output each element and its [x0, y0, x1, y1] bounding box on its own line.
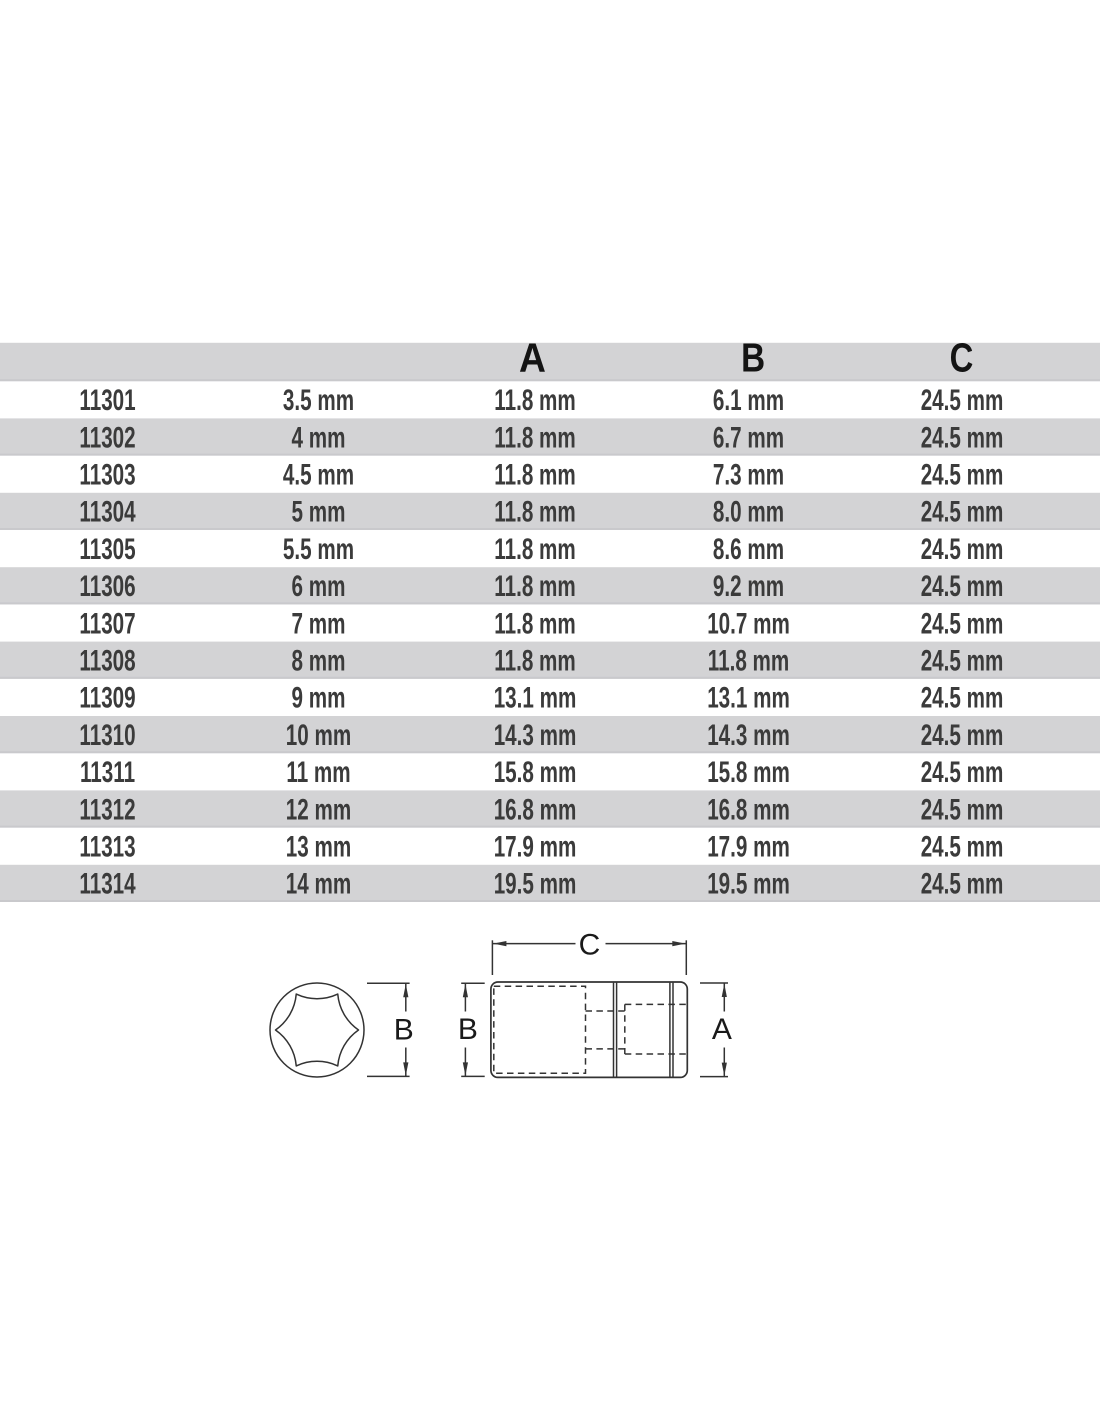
svg-text:11.8 mm: 11.8 mm [494, 422, 575, 454]
svg-text:11.8 mm: 11.8 mm [708, 645, 789, 677]
svg-text:5 mm: 5 mm [292, 496, 346, 528]
svg-text:13.1 mm: 13.1 mm [707, 682, 790, 714]
svg-text:11.8 mm: 11.8 mm [494, 608, 575, 640]
svg-text:11311: 11311 [80, 757, 135, 789]
svg-text:B: B [458, 1013, 478, 1046]
svg-text:24.5 mm: 24.5 mm [921, 757, 1004, 789]
svg-text:11313: 11313 [79, 831, 135, 863]
svg-text:11 mm: 11 mm [286, 757, 350, 789]
svg-text:C: C [579, 928, 601, 961]
svg-text:11301: 11301 [79, 385, 135, 417]
svg-text:24.5 mm: 24.5 mm [921, 794, 1004, 826]
svg-text:A: A [519, 336, 546, 381]
svg-text:6.7 mm: 6.7 mm [713, 422, 784, 454]
svg-text:15.8 mm: 15.8 mm [494, 757, 577, 789]
svg-text:16.8 mm: 16.8 mm [494, 794, 577, 826]
svg-text:B: B [394, 1014, 414, 1047]
svg-text:11.8 mm: 11.8 mm [494, 571, 575, 603]
svg-text:4 mm: 4 mm [292, 422, 346, 454]
svg-text:3.5 mm: 3.5 mm [283, 385, 354, 417]
svg-text:11303: 11303 [79, 459, 135, 491]
svg-text:19.5 mm: 19.5 mm [707, 868, 790, 900]
svg-text:6 mm: 6 mm [292, 571, 346, 603]
svg-text:10 mm: 10 mm [286, 719, 351, 751]
svg-text:14 mm: 14 mm [286, 868, 351, 900]
svg-text:11.8 mm: 11.8 mm [494, 385, 575, 417]
svg-text:9 mm: 9 mm [292, 682, 346, 714]
svg-text:11.8 mm: 11.8 mm [494, 496, 575, 528]
svg-text:5.5 mm: 5.5 mm [283, 533, 354, 565]
svg-text:4.5 mm: 4.5 mm [283, 459, 354, 491]
svg-text:24.5 mm: 24.5 mm [921, 533, 1004, 565]
svg-text:11.8 mm: 11.8 mm [494, 645, 575, 677]
svg-text:24.5 mm: 24.5 mm [921, 385, 1004, 417]
svg-text:24.5 mm: 24.5 mm [921, 868, 1004, 900]
svg-text:12 mm: 12 mm [286, 794, 351, 826]
svg-text:24.5 mm: 24.5 mm [921, 719, 1004, 751]
svg-text:11309: 11309 [79, 682, 135, 714]
svg-text:14.3 mm: 14.3 mm [494, 719, 577, 751]
svg-text:11310: 11310 [79, 719, 135, 751]
svg-text:24.5 mm: 24.5 mm [921, 608, 1004, 640]
svg-text:24.5 mm: 24.5 mm [921, 645, 1004, 677]
svg-text:24.5 mm: 24.5 mm [921, 571, 1004, 603]
svg-text:8 mm: 8 mm [292, 645, 346, 677]
svg-text:14.3 mm: 14.3 mm [707, 719, 790, 751]
svg-text:8.0 mm: 8.0 mm [713, 496, 784, 528]
svg-text:11.8 mm: 11.8 mm [494, 459, 575, 491]
svg-text:11308: 11308 [79, 645, 135, 677]
svg-text:13 mm: 13 mm [286, 831, 351, 863]
svg-text:13.1 mm: 13.1 mm [494, 682, 577, 714]
svg-text:C: C [950, 335, 974, 380]
svg-text:9.2 mm: 9.2 mm [713, 571, 784, 603]
svg-text:11306: 11306 [79, 571, 135, 603]
svg-text:6.1 mm: 6.1 mm [713, 385, 784, 417]
svg-text:24.5 mm: 24.5 mm [921, 422, 1004, 454]
svg-text:11307: 11307 [79, 608, 135, 640]
svg-text:8.6 mm: 8.6 mm [713, 533, 784, 565]
svg-text:17.9 mm: 17.9 mm [707, 831, 790, 863]
svg-text:24.5 mm: 24.5 mm [921, 459, 1004, 491]
svg-text:11312: 11312 [79, 794, 135, 826]
svg-text:24.5 mm: 24.5 mm [921, 682, 1004, 714]
svg-text:15.8 mm: 15.8 mm [707, 757, 790, 789]
svg-text:24.5 mm: 24.5 mm [921, 831, 1004, 863]
svg-text:11302: 11302 [79, 422, 135, 454]
svg-text:11314: 11314 [79, 868, 136, 900]
svg-text:A: A [712, 1013, 732, 1046]
svg-text:7.3 mm: 7.3 mm [713, 459, 784, 491]
svg-text:17.9 mm: 17.9 mm [494, 831, 577, 863]
svg-text:24.5 mm: 24.5 mm [921, 496, 1004, 528]
svg-text:11304: 11304 [79, 496, 136, 528]
svg-text:11.8 mm: 11.8 mm [494, 533, 575, 565]
svg-text:B: B [741, 334, 765, 380]
svg-text:10.7 mm: 10.7 mm [707, 608, 790, 640]
svg-text:19.5 mm: 19.5 mm [494, 868, 577, 900]
svg-text:11305: 11305 [79, 533, 135, 565]
svg-text:16.8 mm: 16.8 mm [707, 794, 790, 826]
svg-text:7 mm: 7 mm [292, 608, 346, 640]
